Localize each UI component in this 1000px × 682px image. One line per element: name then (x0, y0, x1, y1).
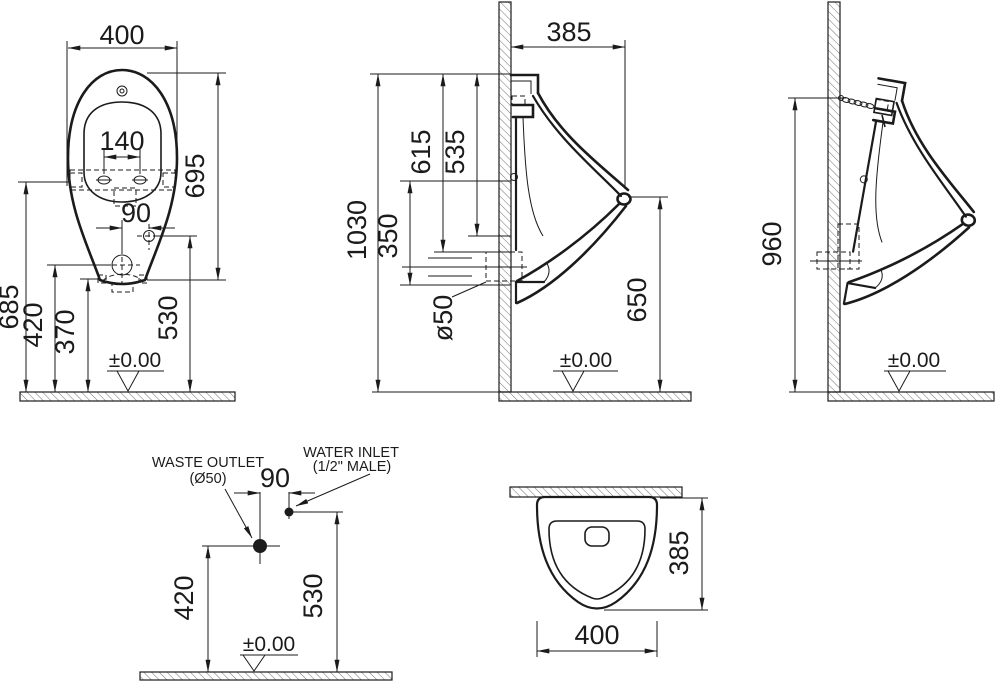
hanging-floor (828, 392, 994, 401)
front-rim-height-dim: 370 (50, 309, 80, 354)
urinal-installation-drawing: 400 140 695 90 685 420 370 530 ±0.00 (0, 0, 1000, 682)
side-wall (499, 2, 511, 392)
side-floor (499, 392, 691, 401)
connection-outlet-height-dim: 420 (169, 575, 199, 620)
front-datum-label: ±0.00 (109, 349, 161, 372)
waste-outlet-size-label: (Ø50) (189, 471, 226, 487)
top-depth-dim: 385 (664, 530, 694, 575)
side-outlet-diameter-dim: ø50 (428, 295, 458, 342)
front-inlet-height-dim: 530 (153, 295, 183, 340)
connection-datum-label: ±0.00 (243, 633, 295, 656)
side-fixing-span-dim: 350 (373, 213, 403, 258)
front-bolt-spacing-dim: 140 (99, 126, 144, 156)
side-top-to-inlet-dim: 535 (440, 129, 470, 174)
hanging-datum-label: ±0.00 (888, 349, 940, 372)
front-width-dim: 400 (99, 20, 144, 50)
connection-spacing-dim: 90 (260, 463, 290, 493)
hanging-wall (828, 2, 840, 392)
front-floor (20, 392, 235, 401)
side-top-to-outlet-dim: 615 (406, 129, 436, 174)
connection-inlet-height-dim: 530 (298, 573, 328, 618)
side-overall-height-dim: 1030 (342, 200, 372, 260)
side-datum-label: ±0.00 (560, 349, 612, 372)
front-outlet-height-dim: 420 (18, 302, 48, 347)
waste-outlet-label: WASTE OUTLET (152, 455, 264, 471)
top-width-dim: 400 (574, 620, 619, 650)
side-rim-height-dim: 650 (622, 277, 652, 322)
hanging-hanger-height-dim: 960 (757, 221, 787, 266)
water-inlet-size-label: (1/2" MALE) (313, 459, 391, 475)
top-view-wall (510, 487, 682, 497)
front-height-dim: 695 (180, 153, 210, 198)
front-inlet-offset-dim: 90 (121, 198, 151, 228)
technical-drawing-sheet: 400 140 695 90 685 420 370 530 ±0.00 (0, 0, 1000, 682)
side-depth-dim: 385 (546, 17, 591, 47)
connection-floor (140, 672, 392, 680)
